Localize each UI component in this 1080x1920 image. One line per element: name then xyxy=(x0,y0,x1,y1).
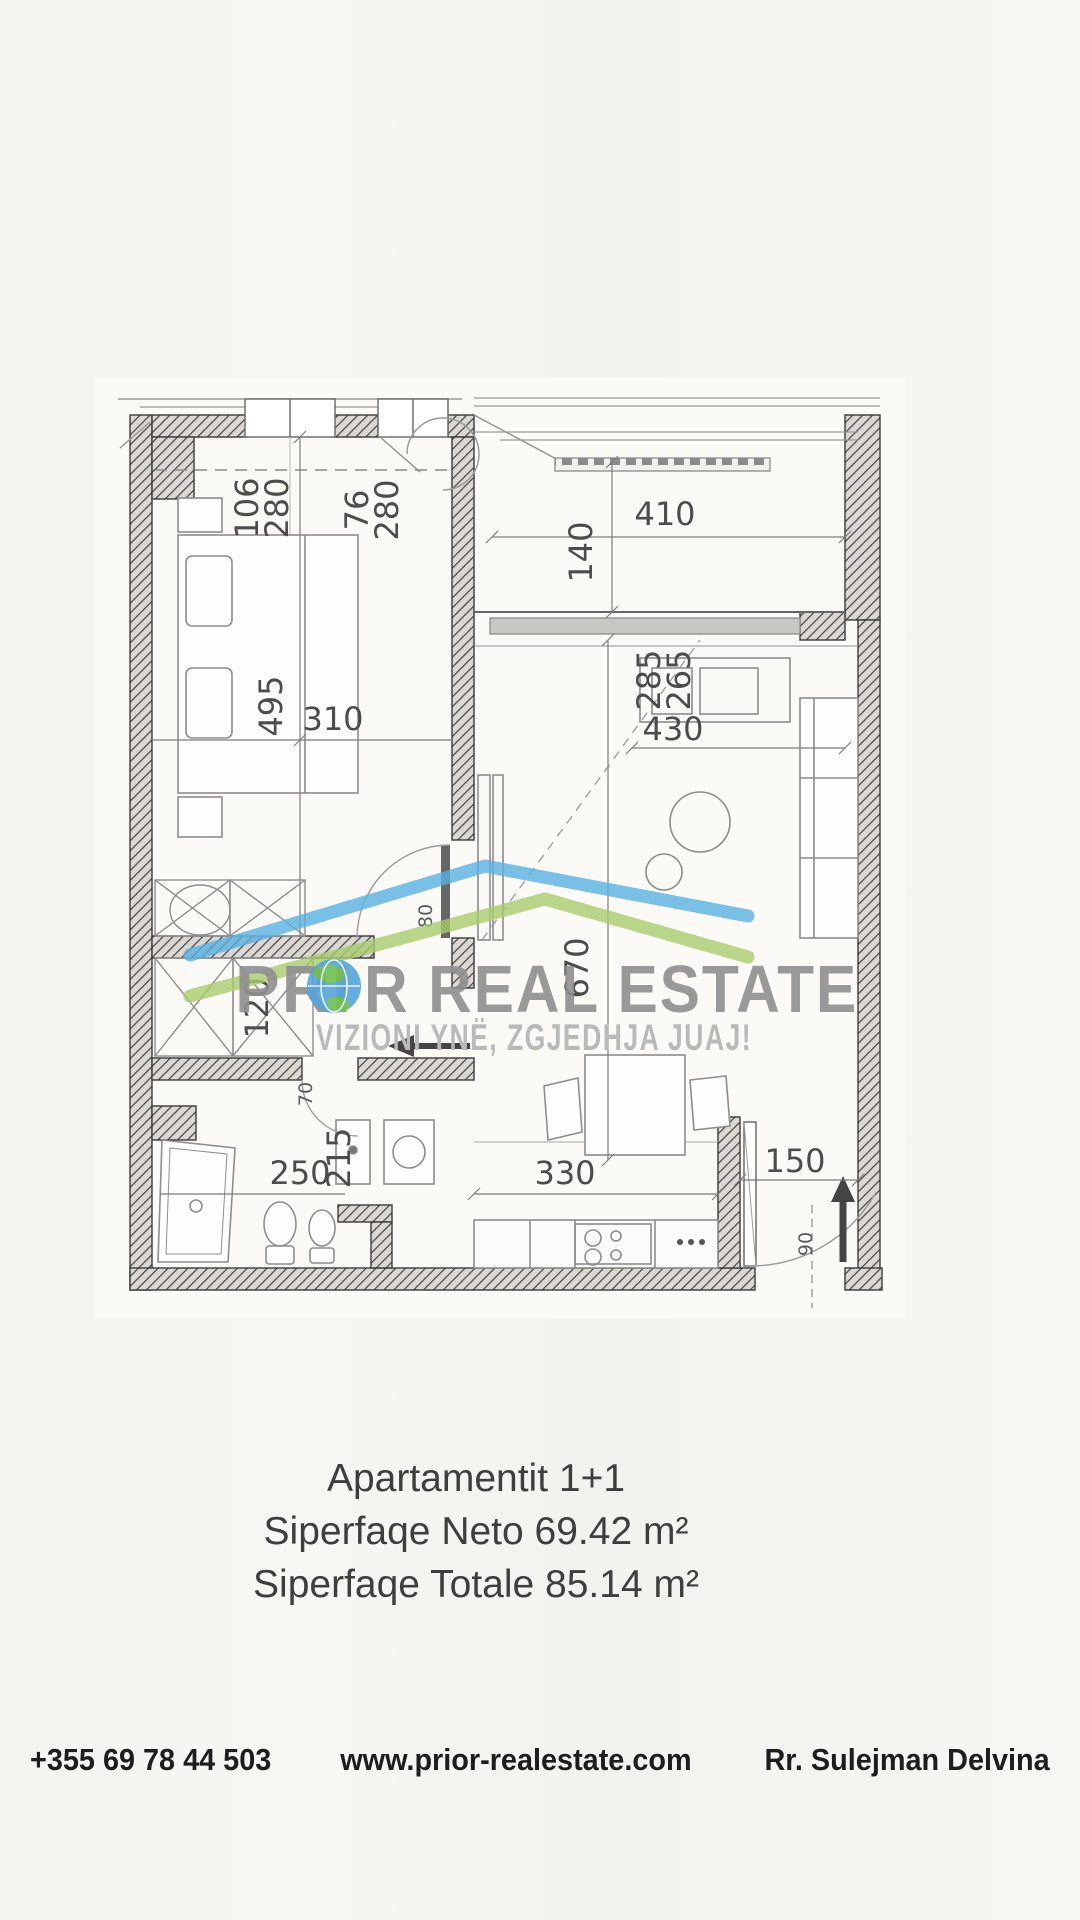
dim-window-mid-h: 280 xyxy=(368,479,406,540)
dim-balcony-depth: 140 xyxy=(562,521,600,582)
dim-entry-width: 150 xyxy=(764,1142,825,1180)
apartment-title: Apartamentit 1+1 xyxy=(0,1452,952,1505)
floor-plan-svg: 106 280 76 280 410 140 285 265 430 495 3… xyxy=(0,0,1080,1920)
apartment-total-area: Siperfaqe Totale 85.14 m² xyxy=(0,1558,952,1611)
dim-window-left-h: 280 xyxy=(258,477,296,538)
globe-icon xyxy=(307,959,361,1013)
dim-living-window-b: 265 xyxy=(660,649,698,710)
footer-address: Rr. Sulejman Delvina xyxy=(765,1742,1050,1778)
footer-website: www.prior-realestate.com xyxy=(341,1742,692,1778)
dim-bedroom-width: 310 xyxy=(302,700,363,738)
footer-bar: +355 69 78 44 503 www.prior-realestate.c… xyxy=(0,1742,1080,1778)
footer-phone: +355 69 78 44 503 xyxy=(30,1742,271,1778)
dim-entry-door: 90 xyxy=(795,1232,817,1256)
dim-bath-door: 70 xyxy=(295,1082,317,1106)
apartment-net-area: Siperfaqe Neto 69.42 m² xyxy=(0,1505,952,1558)
bedroom-furniture xyxy=(178,498,358,837)
apartment-info: Apartamentit 1+1 Siperfaqe Neto 69.42 m²… xyxy=(0,1452,952,1611)
watermark-brand-post: R REAL ESTATE xyxy=(364,952,858,1027)
dim-balcony-width: 410 xyxy=(634,495,695,533)
watermark-tagline: VIZIONI YNË, ZGJEDHJA JUAJ! xyxy=(316,1017,752,1058)
flyer-page: 106 280 76 280 410 140 285 265 430 495 3… xyxy=(0,0,1080,1920)
dim-kitchen-width: 330 xyxy=(534,1154,595,1192)
dim-bedroom-length: 495 xyxy=(252,675,290,736)
dim-bath-length: 215 xyxy=(320,1127,358,1188)
dim-living-width: 430 xyxy=(642,710,703,748)
